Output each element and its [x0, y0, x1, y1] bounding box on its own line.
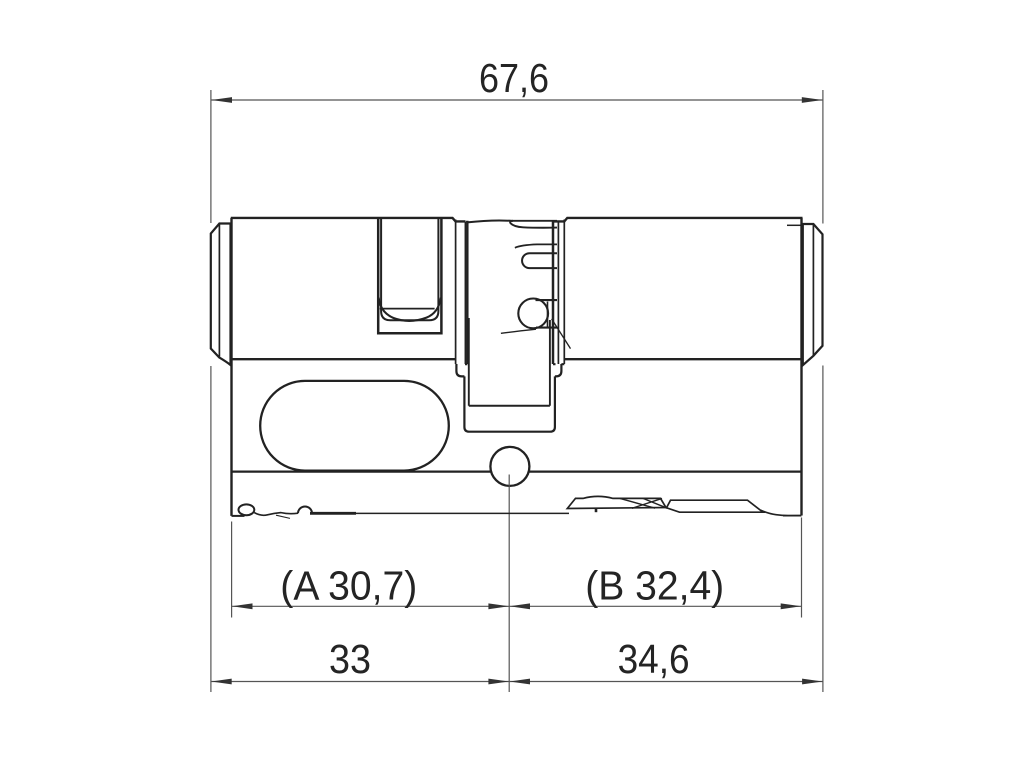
- svg-text:(B 32,4): (B 32,4): [585, 563, 724, 609]
- svg-text:67,6: 67,6: [479, 55, 549, 101]
- svg-text:33: 33: [329, 636, 371, 682]
- svg-text:(A 30,7): (A 30,7): [280, 563, 417, 609]
- svg-text:34,6: 34,6: [618, 636, 690, 682]
